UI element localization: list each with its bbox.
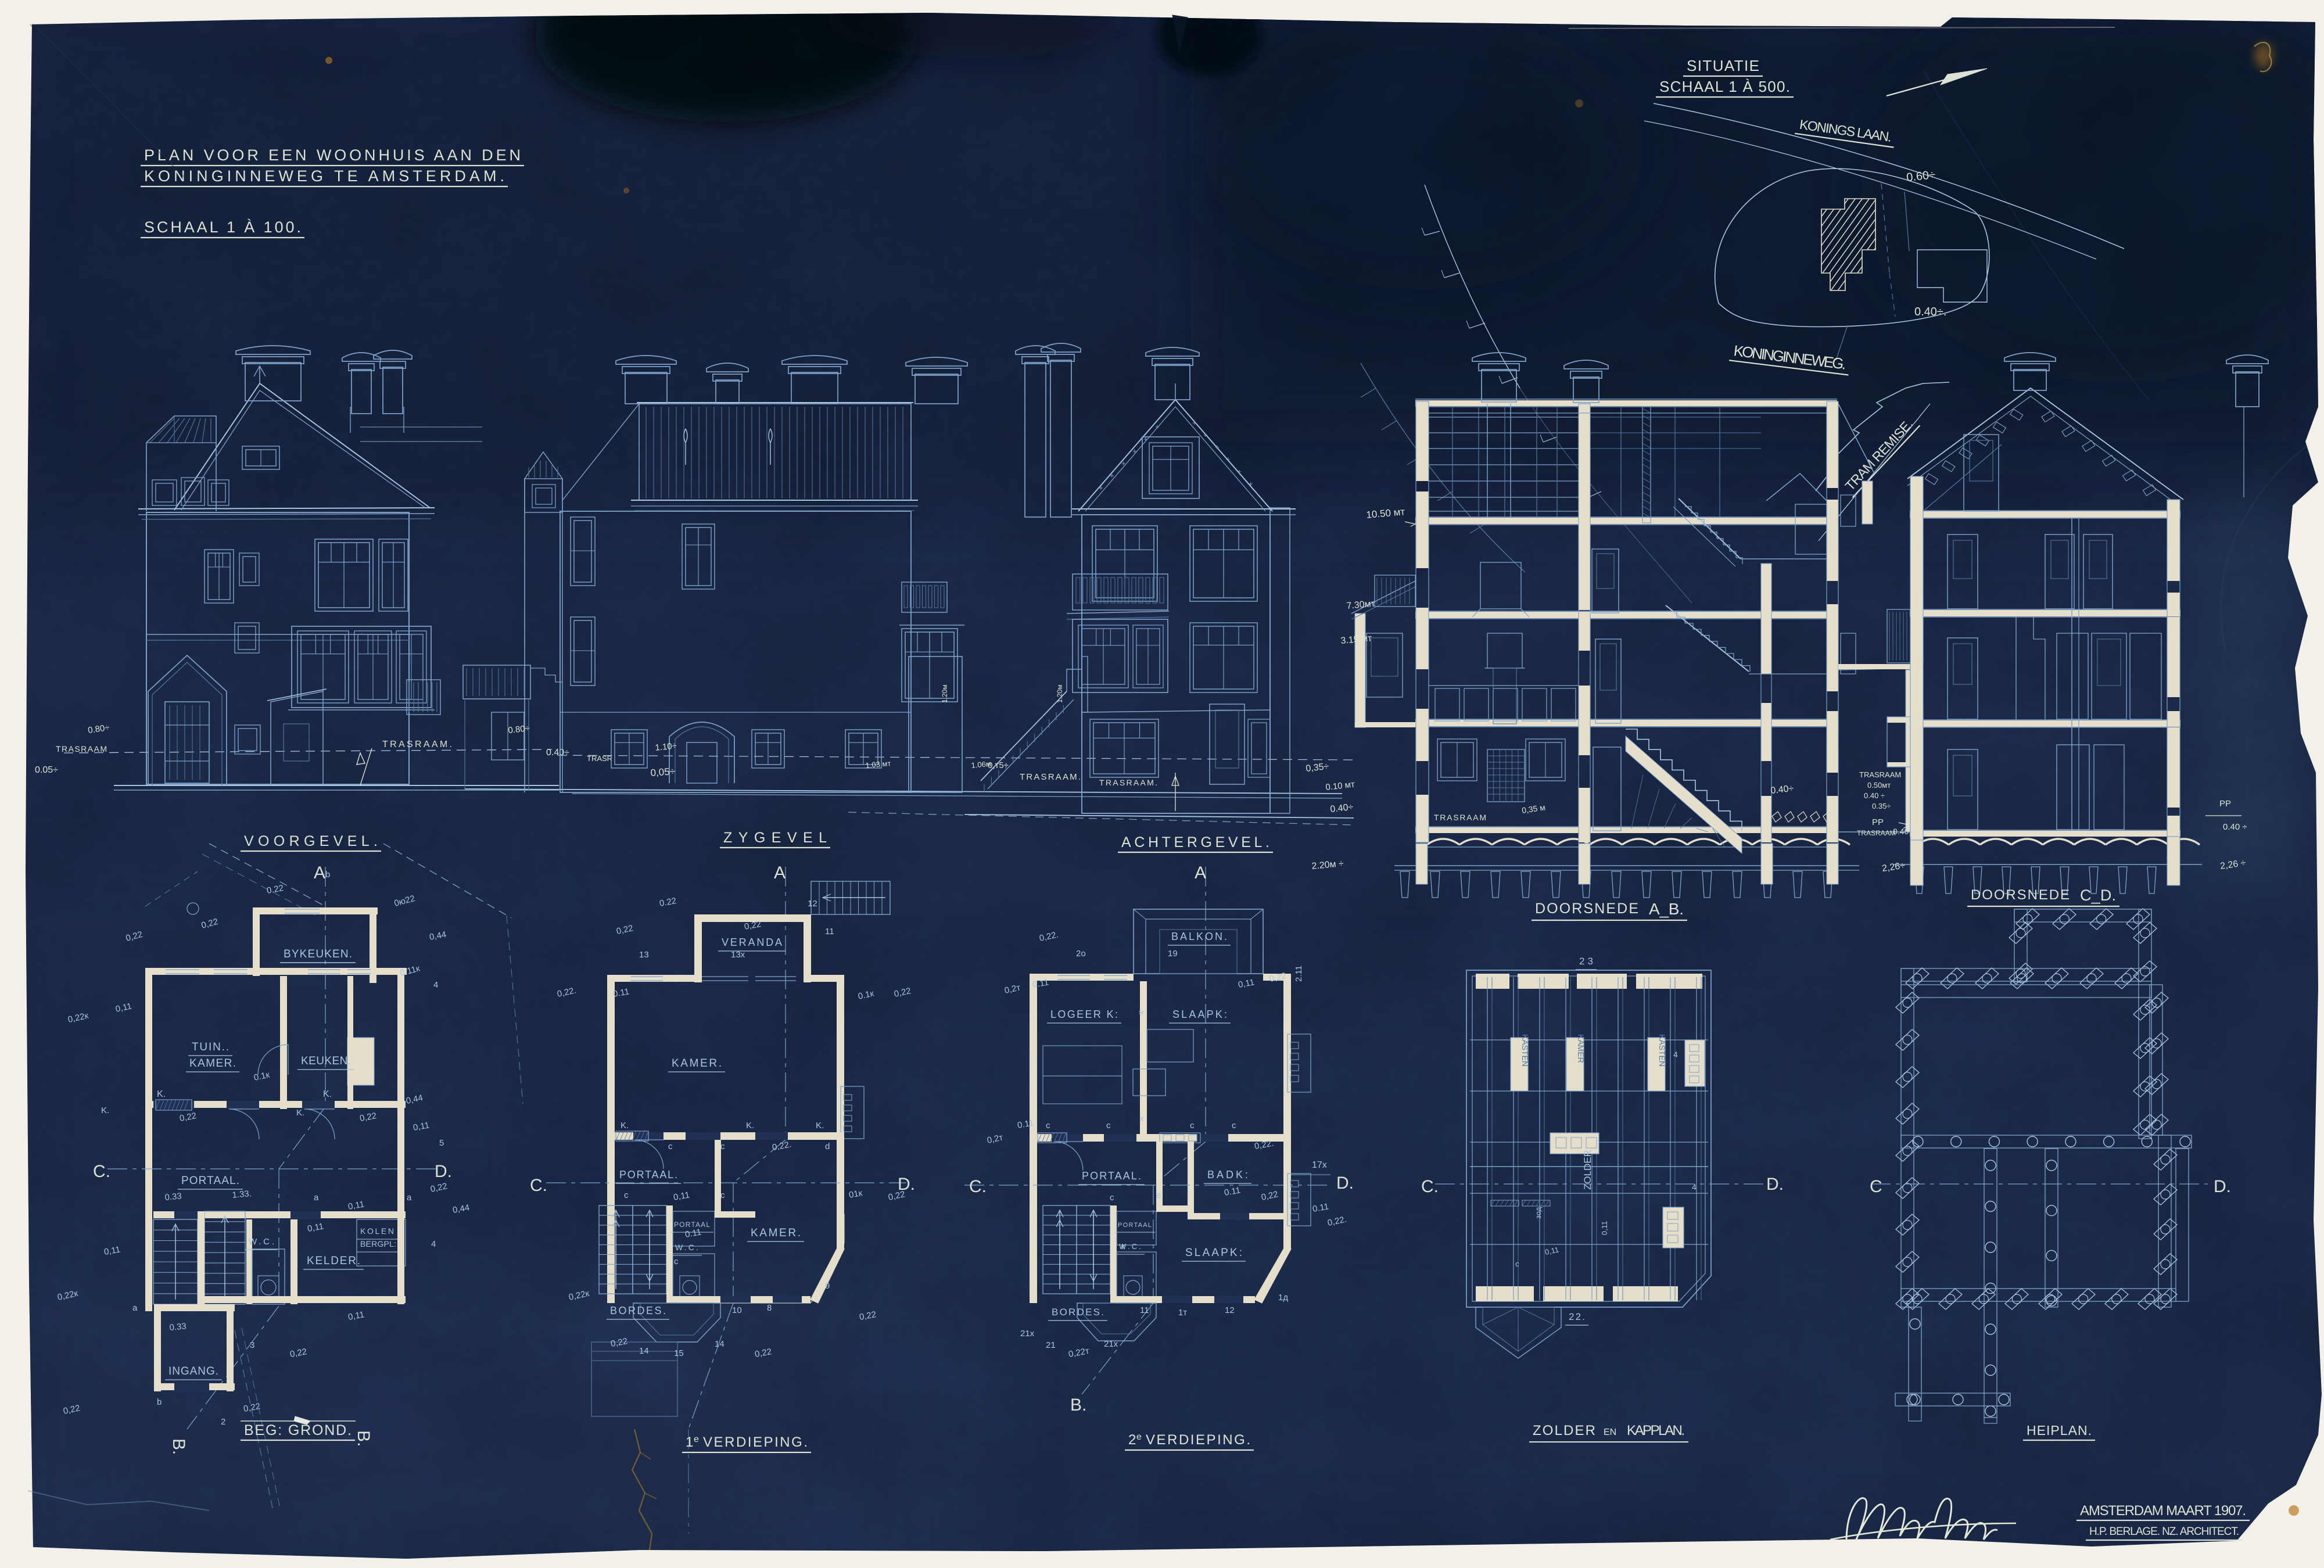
svg-text:EN: EN — [1604, 1427, 1616, 1437]
svg-text:1.20м: 1.20м — [1056, 684, 1064, 703]
svg-text:K.: K. — [157, 1089, 166, 1099]
svg-text:ACHTERGEVEL.: ACHTERGEVEL. — [1121, 834, 1269, 851]
svg-text:c: c — [1110, 1193, 1114, 1203]
svg-text:0.33: 0.33 — [164, 1192, 182, 1203]
svg-text:BEG: GROND.: BEG: GROND. — [244, 1422, 352, 1438]
svg-text:AMSTERDAM MAART 1907.: AMSTERDAM MAART 1907. — [2080, 1503, 2246, 1519]
svg-text:K.: K. — [746, 1121, 754, 1131]
svg-text:e: e — [694, 1434, 699, 1444]
svg-text:+: + — [1237, 467, 1242, 476]
svg-text:+: + — [1215, 443, 1220, 451]
svg-text:BERGPL:: BERGPL: — [360, 1239, 396, 1248]
svg-text:4: 4 — [1673, 1050, 1678, 1059]
svg-text:VERANDA: VERANDA — [722, 937, 782, 948]
svg-text:TRASRAAM.: TRASRAAM. — [1099, 778, 1157, 787]
svg-text:к: к — [1136, 1010, 1145, 1014]
svg-text:0,11: 0,11 — [1600, 1221, 1609, 1235]
svg-text:14: 14 — [639, 1346, 649, 1356]
svg-text:0.40 ÷: 0.40 ÷ — [1893, 827, 1916, 836]
svg-text:0.05÷: 0.05÷ — [35, 765, 58, 775]
svg-text:DOORSNEDE: DOORSNEDE — [1535, 900, 1638, 917]
svg-text:D.: D. — [1766, 1175, 1784, 1194]
svg-text:H.P. BERLAGE. NZ. ARCHITECT.: H.P. BERLAGE. NZ. ARCHITECT. — [2089, 1526, 2239, 1538]
svg-text:VERDIEPING.: VERDIEPING. — [703, 1434, 808, 1450]
svg-text:0,05÷: 0,05÷ — [650, 766, 676, 778]
svg-text:KAMER.: KAMER. — [189, 1057, 236, 1070]
svg-text:A: A — [1195, 863, 1206, 882]
svg-text:BADK:: BADK: — [1207, 1169, 1248, 1181]
svg-text:0.40÷: 0.40÷ — [546, 748, 569, 758]
svg-text:PORTAAL.: PORTAAL. — [619, 1169, 677, 1181]
svg-text:KOLEN: KOLEN — [360, 1226, 394, 1236]
svg-text:c: c — [1106, 1121, 1111, 1131]
svg-text:c: c — [1232, 1121, 1236, 1131]
svg-text:10: 10 — [732, 1305, 742, 1315]
svg-text:14: 14 — [715, 1339, 725, 1349]
svg-text:c: c — [1515, 1260, 1519, 1268]
svg-text:13х: 13х — [731, 950, 745, 960]
svg-text:D.: D. — [1336, 1174, 1354, 1193]
svg-text:TRASRAAM: TRASRAAM — [1859, 770, 1901, 779]
svg-text:2: 2 — [1128, 1432, 1136, 1448]
svg-text:B.: B. — [354, 1430, 373, 1447]
svg-text:2о: 2о — [1076, 949, 1086, 959]
svg-text:A_B.: A_B. — [1649, 900, 1684, 918]
svg-text:a: a — [132, 1303, 138, 1313]
svg-text:c: c — [720, 1190, 725, 1200]
svg-text:K.: K. — [816, 1121, 824, 1131]
svg-text:b: b — [157, 1397, 162, 1407]
svg-text:C: C — [1870, 1177, 1882, 1196]
svg-text:0,т5÷: 0,т5÷ — [988, 760, 1009, 770]
svg-text:+: + — [1132, 447, 1137, 455]
svg-text:PP: PP — [1872, 817, 1884, 827]
svg-text:1.20м: 1.20м — [941, 684, 949, 703]
svg-text:+: + — [1110, 471, 1114, 480]
svg-text:21х: 21х — [1104, 1339, 1118, 1349]
svg-text:c: c — [668, 1142, 673, 1151]
svg-text:KELDER.: KELDER. — [307, 1255, 360, 1267]
svg-text:11: 11 — [1140, 1305, 1149, 1315]
svg-text:к: к — [1140, 1114, 1144, 1123]
svg-text:0.33: 0.33 — [169, 1322, 187, 1333]
svg-text:SCHAAL 1 À 100.: SCHAAL 1 À 100. — [144, 218, 301, 236]
svg-text:13: 13 — [639, 950, 649, 960]
svg-text:к: к — [1121, 1242, 1125, 1251]
svg-text:ZYGEVEL: ZYGEVEL — [723, 830, 827, 846]
svg-text:ZOLDER: ZOLDER — [1533, 1423, 1595, 1438]
svg-text:a: a — [407, 1193, 412, 1203]
svg-text:HEIPLAN.: HEIPLAN. — [2027, 1423, 2092, 1438]
svg-text:22.: 22. — [1569, 1311, 1585, 1322]
svg-text:+: + — [1099, 483, 1103, 492]
svg-text:+: + — [1121, 459, 1126, 468]
svg-text:1т: 1т — [1178, 1308, 1187, 1318]
svg-text:TUIN..: TUIN.. — [192, 1041, 229, 1053]
svg-text:K.: K. — [323, 1089, 332, 1099]
svg-text:0.40 ÷: 0.40 ÷ — [1864, 791, 1885, 800]
svg-text:11: 11 — [825, 927, 834, 937]
svg-text:зод: зод — [1534, 1207, 1543, 1219]
svg-text:A: A — [774, 863, 786, 882]
svg-text:19: 19 — [1168, 949, 1178, 959]
svg-text:17х: 17х — [1312, 1160, 1327, 1170]
svg-text:4: 4 — [431, 1239, 436, 1249]
svg-text:PORTAAL.: PORTAAL. — [181, 1175, 239, 1187]
svg-text:TRASR: TRASR — [587, 754, 612, 763]
svg-text:K.: K. — [101, 1106, 109, 1115]
svg-text:3: 3 — [250, 1340, 254, 1350]
svg-text:12: 12 — [1225, 1305, 1235, 1315]
svg-text:1: 1 — [686, 1434, 693, 1450]
svg-text:PORTAAL: PORTAAL — [674, 1221, 710, 1229]
svg-text:8: 8 — [767, 1303, 772, 1313]
svg-text:4: 4 — [433, 980, 438, 990]
svg-text:2: 2 — [221, 1417, 225, 1427]
svg-text:+: + — [1203, 430, 1208, 439]
svg-text:c: c — [1046, 1121, 1050, 1131]
svg-text:KAPPLAN.: KAPPLAN. — [1627, 1423, 1685, 1438]
svg-text:0.40 ÷: 0.40 ÷ — [2223, 822, 2247, 832]
svg-text:d: d — [825, 1142, 830, 1151]
svg-text:B.: B. — [169, 1438, 188, 1455]
svg-text:BORDES.: BORDES. — [1052, 1307, 1104, 1318]
svg-text:0.50мт: 0.50мт — [1867, 781, 1891, 790]
svg-text:C.: C. — [93, 1162, 110, 1181]
svg-text:1д: 1д — [1278, 1293, 1288, 1303]
svg-text:4: 4 — [1692, 1182, 1697, 1192]
svg-text:TRASRAAM.: TRASRAAM. — [1020, 772, 1081, 782]
svg-text:C.: C. — [530, 1176, 547, 1195]
svg-text:BYKEUKEN.: BYKEUKEN. — [284, 948, 352, 960]
svg-text:12: 12 — [808, 899, 817, 909]
svg-text:D.: D. — [435, 1162, 452, 1181]
svg-text:+: + — [1155, 422, 1160, 431]
svg-text:K.: K. — [296, 1108, 304, 1118]
svg-text:C.: C. — [969, 1177, 987, 1196]
svg-text:DOORSNEDE: DOORSNEDE — [1971, 887, 2070, 903]
svg-text:BORDES.: BORDES. — [610, 1305, 666, 1316]
svg-text:B.: B. — [1070, 1395, 1086, 1415]
svg-text:VERDIEPING.: VERDIEPING. — [1146, 1432, 1250, 1448]
svg-text:ZOLDER.: ZOLDER. — [1582, 1147, 1593, 1190]
svg-text:TRASRAAM: TRASRAAM — [1857, 829, 1896, 837]
svg-text:1.33.: 1.33. — [232, 1189, 252, 1200]
svg-text:KEUKEN.: KEUKEN. — [301, 1055, 351, 1067]
svg-text:PORTAAL: PORTAAL — [1118, 1222, 1152, 1229]
svg-text:a: a — [314, 1193, 319, 1203]
svg-text:KASTEN: KASTEN — [1520, 1034, 1530, 1067]
svg-text:0.35÷: 0.35÷ — [1872, 802, 1891, 810]
svg-text:21: 21 — [1046, 1340, 1056, 1350]
svg-text:c: c — [1190, 1121, 1195, 1131]
svg-text:15: 15 — [674, 1348, 684, 1358]
svg-text:c: c — [624, 1190, 629, 1200]
svg-text:KAMER: KAMER — [1576, 1034, 1586, 1063]
svg-text:b: b — [325, 870, 330, 880]
svg-text:C.: C. — [1421, 1177, 1439, 1196]
svg-text:21х: 21х — [1020, 1329, 1035, 1339]
svg-text:SCHAAL 1 À 500.: SCHAAL 1 À 500. — [1659, 78, 1790, 95]
svg-text:D.: D. — [2214, 1177, 2231, 1196]
svg-text:+: + — [1143, 435, 1148, 443]
svg-text:C_D.: C_D. — [2080, 887, 2116, 904]
svg-text:+: + — [1192, 418, 1197, 427]
svg-text:c: c — [720, 1142, 725, 1151]
svg-text:INGANG.: INGANG. — [168, 1365, 218, 1377]
svg-text:BALKON.: BALKON. — [1171, 931, 1227, 942]
svg-text:TRASRAAM: TRASRAAM — [1434, 813, 1486, 822]
svg-text:e: e — [1136, 1432, 1142, 1442]
svg-text:+: + — [1226, 455, 1231, 464]
svg-text:TRASRAAM: TRASRAAM — [56, 744, 107, 753]
svg-text:0.40÷.: 0.40÷. — [1914, 306, 1946, 318]
svg-text:PP: PP — [2219, 799, 2231, 809]
svg-text:5: 5 — [439, 1138, 444, 1148]
svg-text:TRASRAAM.: TRASRAAM. — [382, 740, 452, 749]
svg-text:A: A — [314, 863, 325, 882]
svg-text:+: + — [1249, 479, 1253, 488]
svg-text:KASTEN: KASTEN — [1658, 1034, 1667, 1067]
svg-text:9: 9 — [825, 1281, 830, 1291]
svg-text:PORTAAL.: PORTAAL. — [1082, 1170, 1141, 1182]
svg-text:K.: K. — [621, 1121, 629, 1131]
svg-text:e: e — [1156, 1190, 1161, 1200]
svg-text:c: c — [674, 1257, 679, 1266]
svg-text:2.11: 2.11 — [1294, 966, 1304, 982]
